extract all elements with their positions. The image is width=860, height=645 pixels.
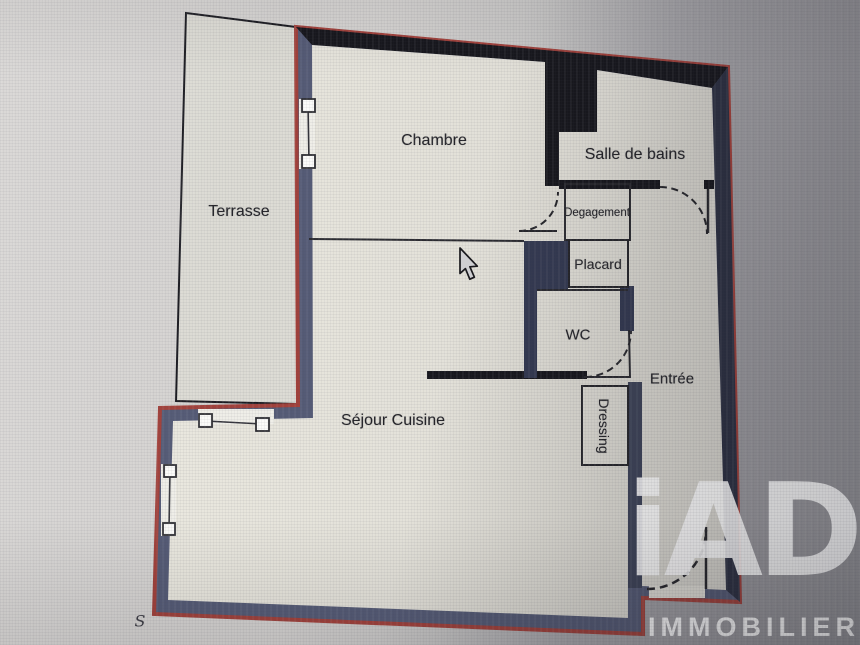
agency-logo: iAD [626,468,857,596]
room-label-dressing: Dressing [596,398,612,453]
floor-plan-photo: Terrasse Chambre Salle de bains Degageme… [0,0,860,645]
chambre-window-end [302,99,315,112]
room-label-entree: Entrée [650,371,694,388]
sejour-left-window-end [163,523,175,535]
kitchen-partition-wall [427,371,587,379]
room-label-chambre: Chambre [401,132,467,150]
sejour-top-window-end [199,414,212,427]
room-label-sejour-cuisine: Séjour Cuisine [341,412,445,430]
sejour-left-window-end [164,465,176,477]
agency-logo-subtitle: IMMOBILIER [648,612,860,643]
room-label-terrasse: Terrasse [208,203,269,221]
chambre-window-end [302,155,315,168]
chambre-bathroom-wall [545,62,559,186]
wc-right-wall [620,286,634,331]
room-label-wc: WC [566,327,591,344]
sejour-left-window-line [169,470,170,530]
wc-right-line [629,330,630,377]
bathroom-bottom-wall-stub [704,180,714,189]
sejour-top-window-end [256,418,269,431]
chambre-window-line [308,105,309,162]
room-label-salle-de-bains: Salle de bains [585,146,686,164]
room-label-placard: Placard [574,256,621,272]
compass-south-letter: S [135,612,146,631]
room-label-degagement: Degagement [564,207,630,219]
